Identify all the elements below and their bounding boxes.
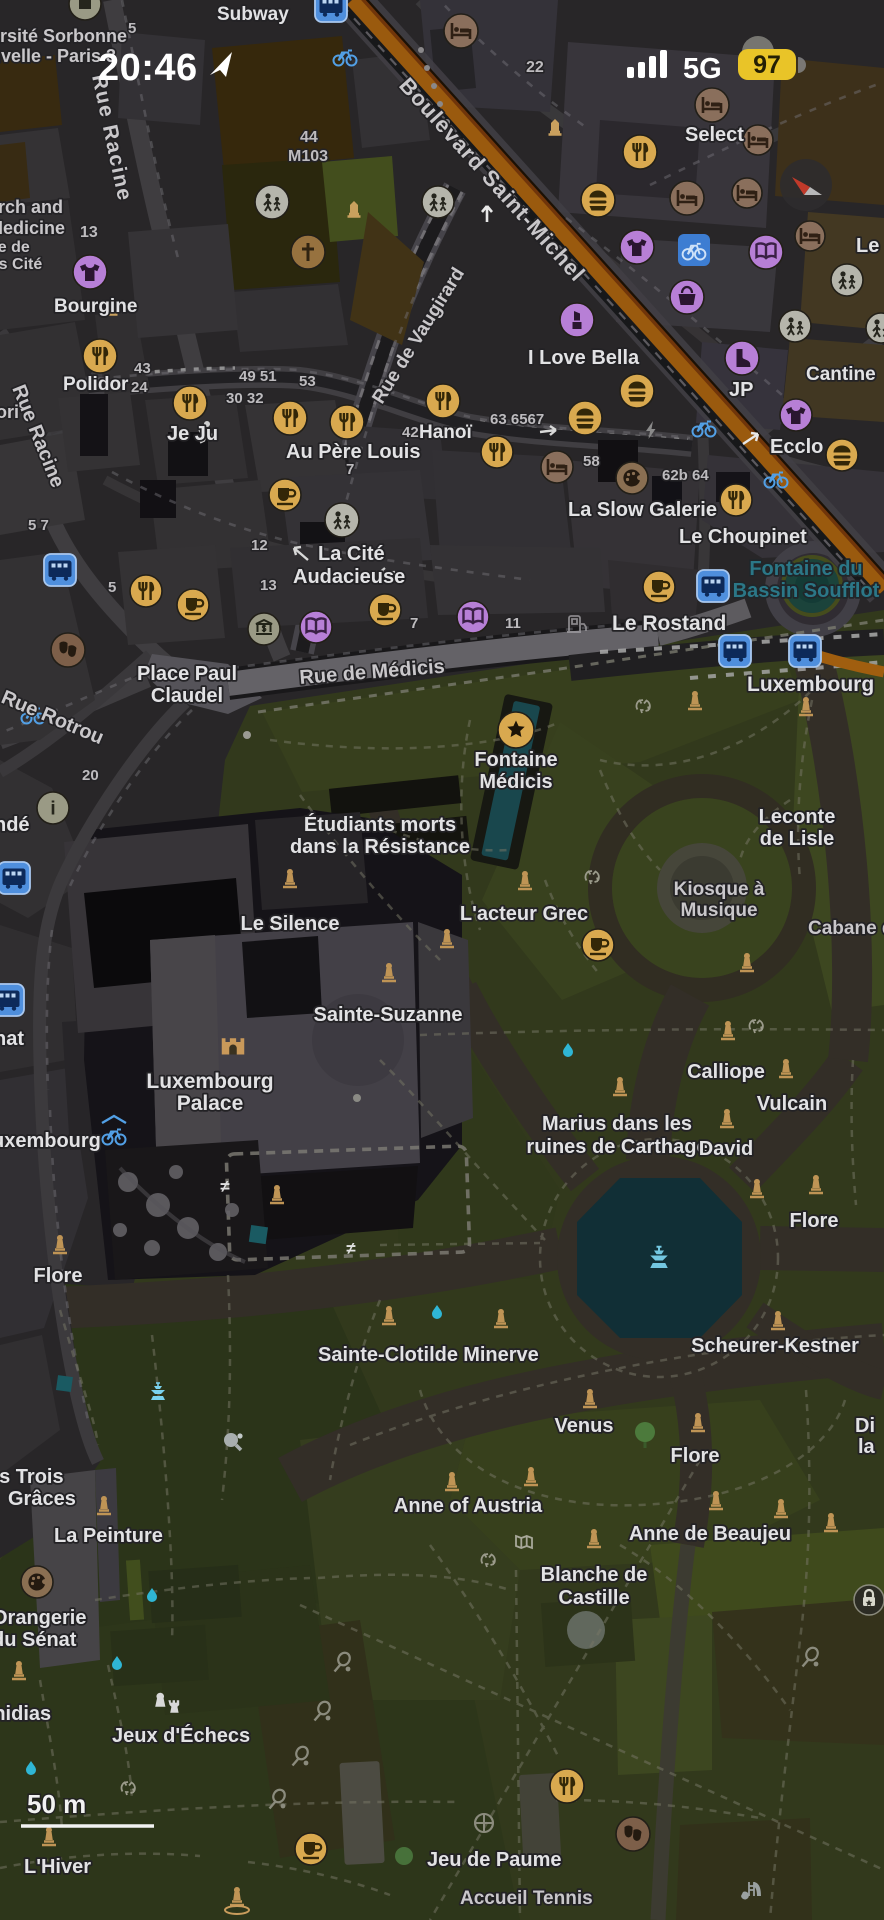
svg-text:30 32: 30 32 xyxy=(226,390,264,407)
svg-text:Fontaine du: Fontaine du xyxy=(749,558,862,580)
svg-text:Le Rostand: Le Rostand xyxy=(612,612,726,635)
svg-text:Di: Di xyxy=(855,1415,875,1437)
svg-text:Bassin Soufflot: Bassin Soufflot xyxy=(733,580,880,602)
svg-text:uxembourg: uxembourg xyxy=(0,1130,101,1152)
svg-text:Je Ju: Je Ju xyxy=(167,423,218,445)
svg-text:Cabane du: Cabane du xyxy=(808,918,884,939)
svg-text:Subway: Subway xyxy=(217,4,289,25)
svg-text:la: la xyxy=(858,1436,876,1458)
svg-text:Vulcain: Vulcain xyxy=(757,1093,827,1115)
svg-text:Flore: Flore xyxy=(671,1445,720,1467)
svg-text:Luxembourg: Luxembourg xyxy=(747,673,874,696)
svg-text:Médicis: Médicis xyxy=(479,771,552,793)
svg-text:12: 12 xyxy=(251,537,268,554)
svg-text:David: David xyxy=(699,1138,753,1160)
svg-text:Grâces: Grâces xyxy=(8,1488,76,1510)
svg-text:Venus: Venus xyxy=(555,1415,614,1437)
svg-text:5 7: 5 7 xyxy=(28,517,49,534)
svg-text:L'Hiver: L'Hiver xyxy=(24,1856,91,1878)
svg-text:Kiosque à: Kiosque à xyxy=(674,879,765,900)
svg-text:Sainte-Clotilde: Sainte-Clotilde xyxy=(318,1344,458,1366)
svg-text:Le: Le xyxy=(856,235,879,257)
svg-text:49 51: 49 51 xyxy=(239,368,277,385)
svg-text:Jeu de Paume: Jeu de Paume xyxy=(427,1849,562,1871)
svg-text:Palace: Palace xyxy=(177,1092,244,1115)
svg-text:Jeux d'Échecs: Jeux d'Échecs xyxy=(112,1724,250,1747)
svg-text:de Lisle: de Lisle xyxy=(760,828,834,850)
svg-text:Au Père Louis: Au Père Louis xyxy=(286,441,420,463)
svg-text:62b 64: 62b 64 xyxy=(662,467,709,484)
svg-text:11: 11 xyxy=(505,615,521,632)
svg-text:5: 5 xyxy=(108,579,116,596)
svg-text:L'acteur Grec: L'acteur Grec xyxy=(460,903,588,925)
svg-text:Claudel: Claudel xyxy=(151,685,223,707)
svg-text:ori: ori xyxy=(0,402,19,422)
svg-text:Orangerie: Orangerie xyxy=(0,1607,86,1629)
svg-text:7: 7 xyxy=(410,615,418,632)
svg-text:Medicine: Medicine xyxy=(0,218,65,238)
svg-text:Place Paul: Place Paul xyxy=(137,663,237,685)
svg-text:arch and: arch and xyxy=(0,197,63,217)
svg-text:Blanche de: Blanche de xyxy=(541,1564,648,1586)
svg-text:Calliope: Calliope xyxy=(687,1061,765,1083)
svg-text:50 m: 50 m xyxy=(27,1789,86,1819)
svg-text:ruines de Carthage: ruines de Carthage xyxy=(526,1136,707,1158)
svg-text:Audacieuse: Audacieuse xyxy=(293,566,405,588)
svg-text:du Sénat: du Sénat xyxy=(0,1629,77,1651)
svg-text:97: 97 xyxy=(753,51,781,79)
svg-text:La Slow Galerie: La Slow Galerie xyxy=(568,499,717,521)
svg-text:dans la Résistance: dans la Résistance xyxy=(290,836,470,858)
svg-text:Flore: Flore xyxy=(790,1210,839,1232)
svg-text:Le Choupinet: Le Choupinet xyxy=(679,526,807,548)
svg-text:La Peinture: La Peinture xyxy=(54,1525,163,1547)
svg-text:5G: 5G xyxy=(683,53,722,85)
svg-text:Bourgine: Bourgine xyxy=(54,296,137,317)
svg-text:JP: JP xyxy=(729,379,753,401)
svg-text:Accueil Tennis: Accueil Tennis xyxy=(460,1888,593,1909)
svg-text:20: 20 xyxy=(82,767,99,784)
svg-text:nat: nat xyxy=(0,1028,24,1050)
svg-text:63 6567: 63 6567 xyxy=(490,411,544,428)
svg-text:Hanoï: Hanoï xyxy=(419,422,473,443)
svg-text:ris Cité: ris Cité xyxy=(0,256,42,273)
svg-text:44: 44 xyxy=(300,129,318,146)
svg-text:Le Silence: Le Silence xyxy=(241,913,340,935)
svg-text:13: 13 xyxy=(80,224,98,241)
svg-text:Fontaine: Fontaine xyxy=(474,749,557,771)
svg-text:Castille: Castille xyxy=(558,1587,629,1609)
svg-text:58: 58 xyxy=(583,453,600,470)
svg-text:22: 22 xyxy=(526,59,544,76)
svg-text:13: 13 xyxy=(260,577,277,594)
svg-text:Flore: Flore xyxy=(34,1265,83,1287)
svg-text:Sainte-Suzanne: Sainte-Suzanne xyxy=(314,1004,463,1026)
svg-text:La Cité: La Cité xyxy=(318,543,385,565)
svg-text:es Trois: es Trois xyxy=(0,1466,64,1488)
svg-text:Scheurer-Kestner: Scheurer-Kestner xyxy=(691,1335,859,1357)
svg-text:Anne de Beaujeu: Anne de Beaujeu xyxy=(629,1523,791,1545)
svg-text:Leconte: Leconte xyxy=(759,806,836,828)
svg-text:I Love Bella: I Love Bella xyxy=(528,347,640,369)
svg-text:Ecclo: Ecclo xyxy=(770,436,823,458)
svg-text:42: 42 xyxy=(402,424,419,441)
svg-text:Polidor: Polidor xyxy=(63,374,129,395)
svg-text:ndé: ndé xyxy=(0,814,30,836)
svg-text:24: 24 xyxy=(131,379,148,396)
svg-text:Marius dans les: Marius dans les xyxy=(542,1113,692,1135)
svg-text:Musique: Musique xyxy=(680,900,757,921)
svg-text:5: 5 xyxy=(128,20,136,37)
svg-text:Anne of Austria: Anne of Austria xyxy=(394,1495,543,1517)
svg-text:Luxembourg: Luxembourg xyxy=(146,1070,273,1093)
svg-text:Cantine: Cantine xyxy=(806,364,876,385)
svg-text:Select: Select xyxy=(685,124,744,146)
svg-text:M103: M103 xyxy=(288,148,328,165)
svg-text:53: 53 xyxy=(299,373,316,390)
svg-text:20:46: 20:46 xyxy=(98,47,198,89)
svg-text:Phidias: Phidias xyxy=(0,1703,51,1725)
svg-text:Étudiants morts: Étudiants morts xyxy=(304,813,456,836)
svg-text:7: 7 xyxy=(346,461,354,478)
svg-text:ersité Sorbonne: ersité Sorbonne xyxy=(0,26,127,46)
svg-text:ne de: ne de xyxy=(0,239,30,256)
svg-text:43: 43 xyxy=(134,360,151,377)
svg-text:Minerve: Minerve xyxy=(463,1344,539,1366)
